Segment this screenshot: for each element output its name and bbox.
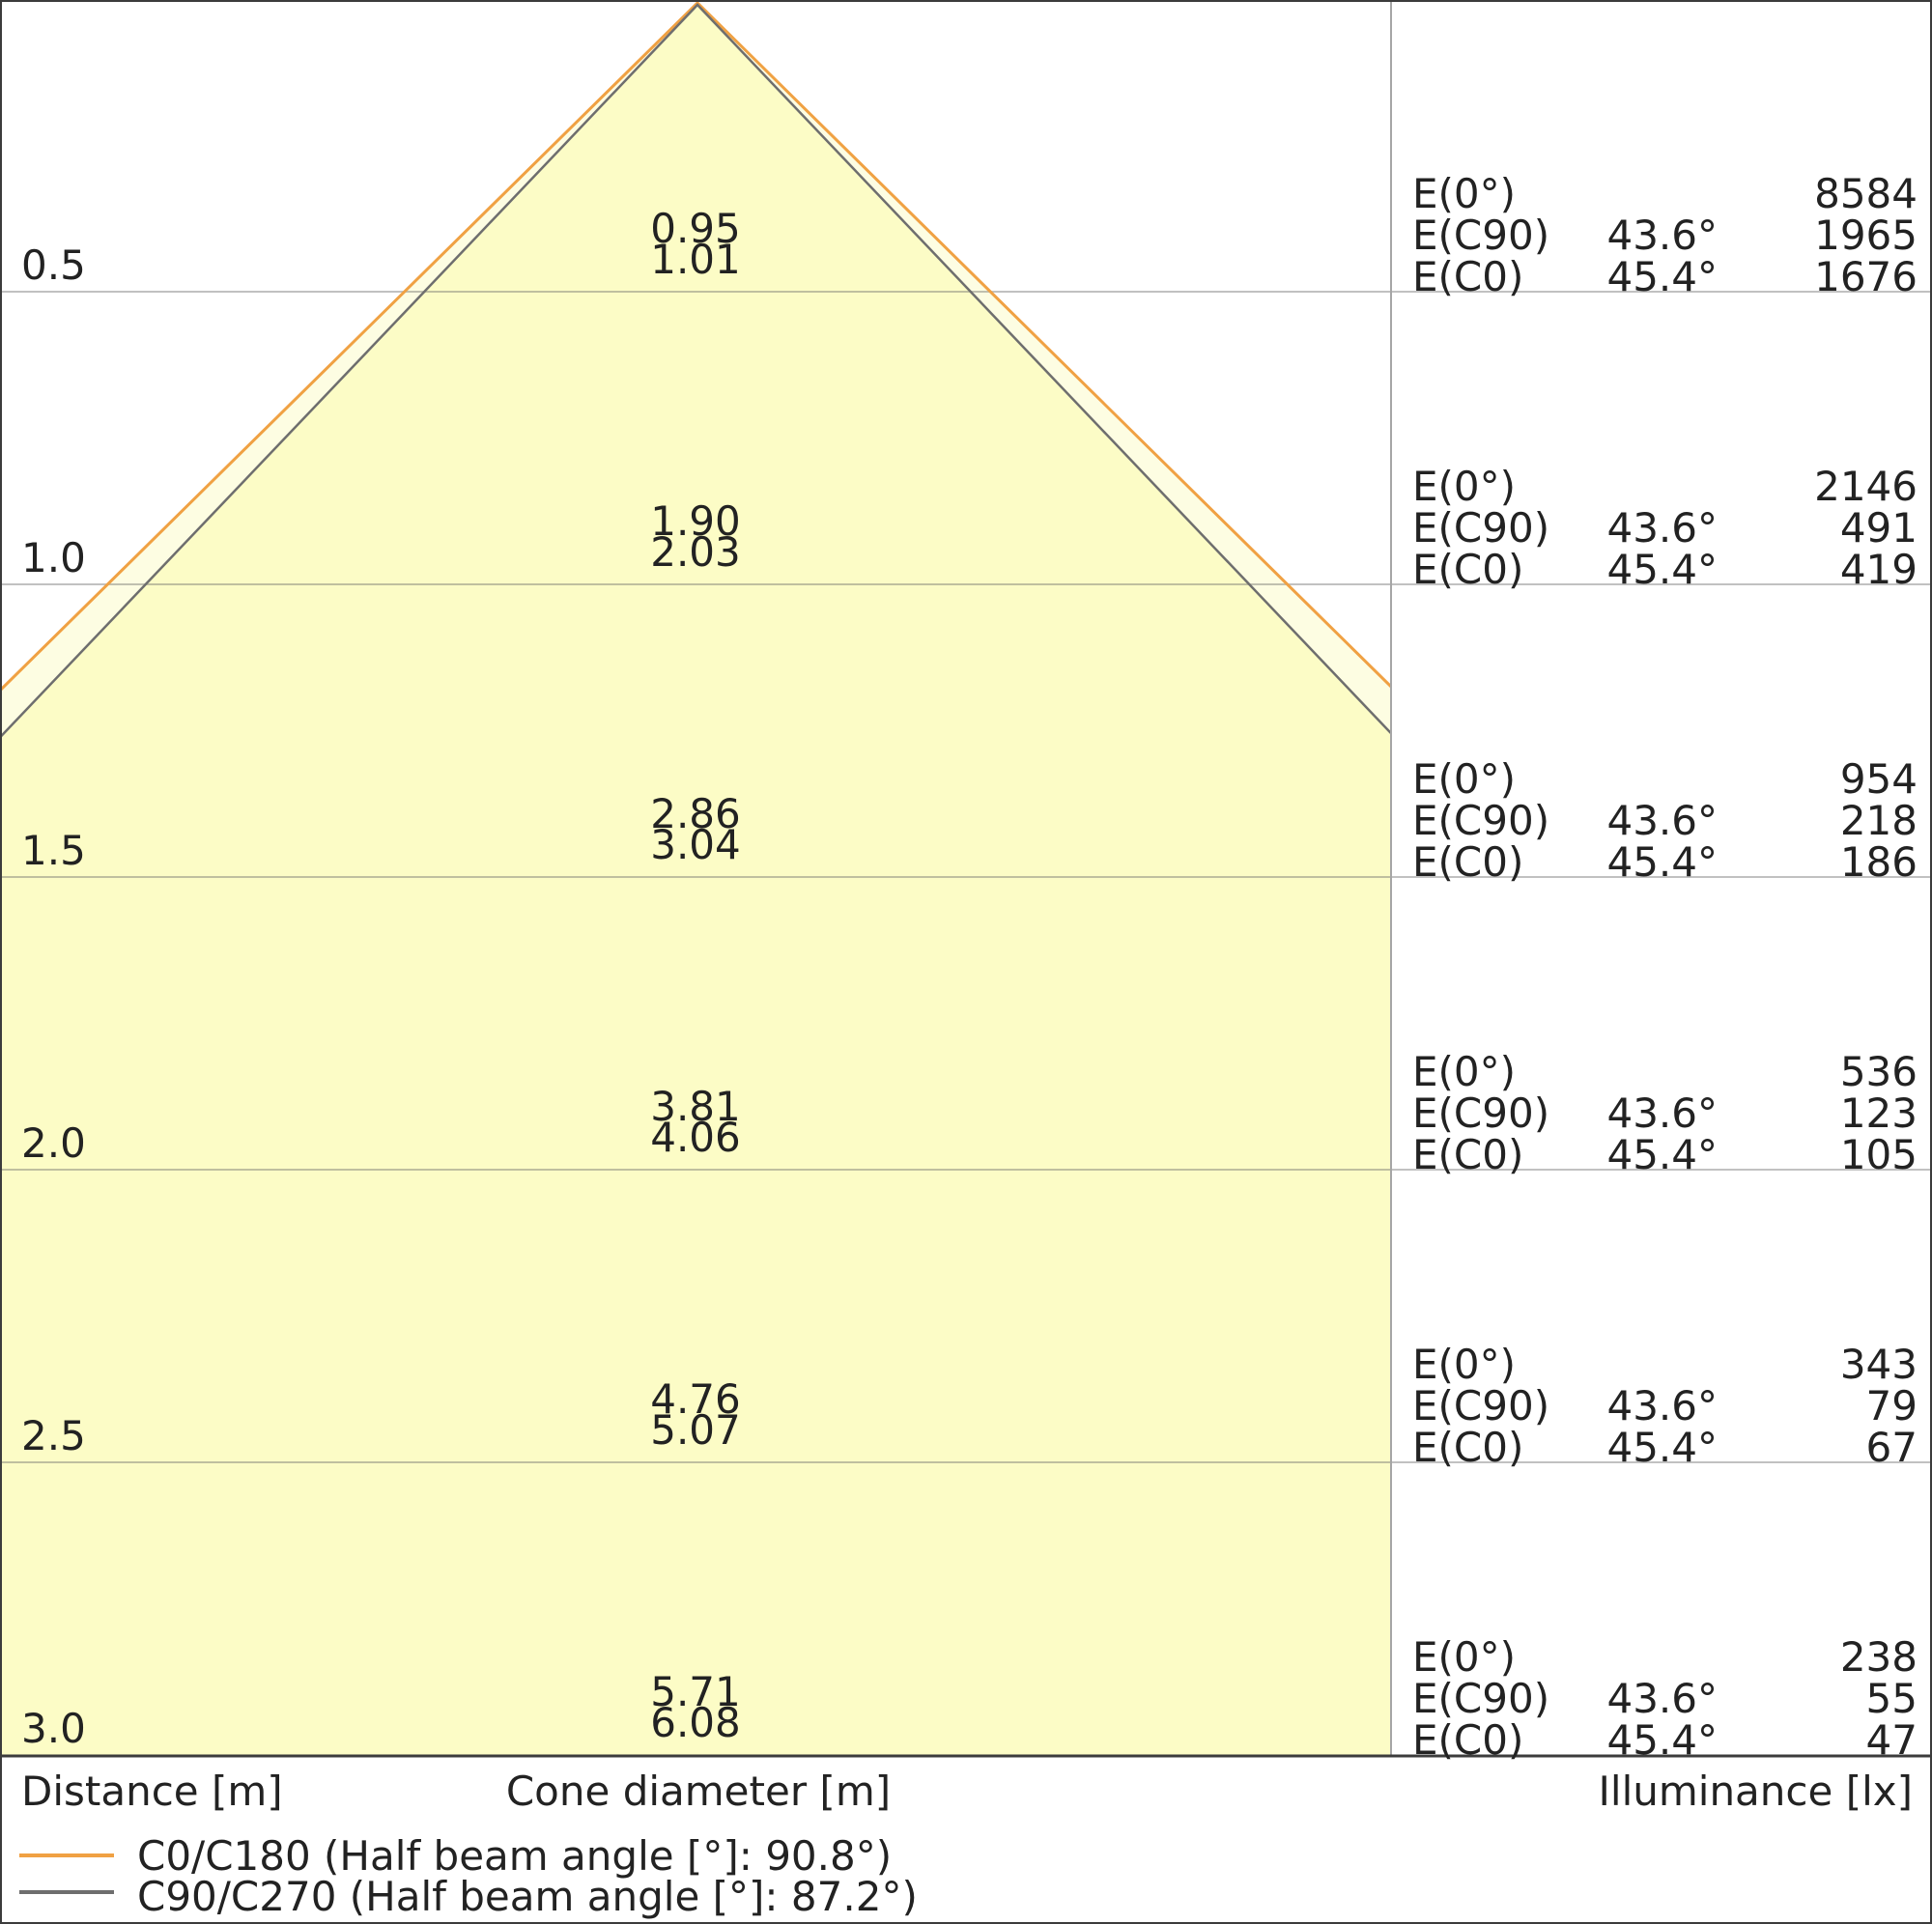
ec0-label: E(C0)	[1412, 1428, 1523, 1468]
e0-value: 238	[1840, 1637, 1918, 1678]
e0-value: 343	[1840, 1344, 1918, 1385]
cone-diameter-c0-1-5: 3.04	[0, 825, 1391, 865]
illuminance-row: E(C0) 45.4° 1676	[1391, 257, 1930, 301]
light-cone-diagram: 0.5 1.0 1.5 2.0 2.5 3.0 0.95 1.01 1.90 2…	[0, 0, 1932, 1924]
ec90-angle: 43.6°	[1606, 1093, 1718, 1134]
illuminance-row: E(C0) 45.4° 419	[1391, 550, 1930, 594]
ec0-value: 105	[1840, 1135, 1918, 1175]
ec90-value: 491	[1840, 508, 1918, 549]
illuminance-row: E(C0) 45.4° 186	[1391, 842, 1930, 887]
ec90-label: E(C90)	[1412, 508, 1549, 549]
legend-entry-c0-c180: C0/C180 (Half beam angle [°]: 90.8°)	[137, 1836, 892, 1877]
ec90-value: 218	[1840, 801, 1918, 841]
ec0-value: 1676	[1814, 257, 1918, 297]
ec0-value: 67	[1866, 1428, 1918, 1468]
ec0-label: E(C0)	[1412, 550, 1523, 590]
e0-label: E(0°)	[1412, 467, 1516, 507]
e0-label: E(0°)	[1412, 1637, 1516, 1678]
e0-value: 954	[1840, 759, 1918, 800]
legend-entry-c90-c270: C90/C270 (Half beam angle [°]: 87.2°)	[137, 1877, 918, 1917]
ec0-angle: 45.4°	[1606, 257, 1718, 297]
ec0-value: 419	[1840, 550, 1918, 590]
illuminance-row: E(C0) 45.4° 105	[1391, 1135, 1930, 1179]
ec0-label: E(C0)	[1412, 257, 1523, 297]
e0-value: 8584	[1814, 174, 1918, 214]
ec0-label: E(C0)	[1412, 1720, 1523, 1761]
illuminance-row: E(C0) 45.4° 47	[1391, 1720, 1930, 1765]
ec0-angle: 45.4°	[1606, 1135, 1718, 1175]
axis-label-illuminance: Illuminance [lx]	[0, 1771, 1913, 1812]
ec0-angle: 45.4°	[1606, 1720, 1718, 1761]
illuminance-row: E(C0) 45.4° 67	[1391, 1428, 1930, 1472]
ec90-value: 79	[1866, 1386, 1918, 1427]
ec90-angle: 43.6°	[1606, 801, 1718, 841]
ec90-angle: 43.6°	[1606, 215, 1718, 256]
e0-value: 2146	[1814, 467, 1918, 507]
e0-label: E(0°)	[1412, 174, 1516, 214]
ec90-value: 1965	[1814, 215, 1918, 256]
cone-diameter-c0-2-5: 5.07	[0, 1410, 1391, 1451]
ec0-label: E(C0)	[1412, 842, 1523, 883]
ec0-label: E(C0)	[1412, 1135, 1523, 1175]
ec90-label: E(C90)	[1412, 1679, 1549, 1719]
ec0-value: 47	[1866, 1720, 1918, 1761]
ec0-value: 186	[1840, 842, 1918, 883]
ec0-angle: 45.4°	[1606, 842, 1718, 883]
e0-label: E(0°)	[1412, 759, 1516, 800]
ec90-label: E(C90)	[1412, 801, 1549, 841]
ec90-value: 123	[1840, 1093, 1918, 1134]
ec90-angle: 43.6°	[1606, 508, 1718, 549]
ec90-value: 55	[1866, 1679, 1918, 1719]
ec90-angle: 43.6°	[1606, 1679, 1718, 1719]
e0-value: 536	[1840, 1052, 1918, 1092]
e0-label: E(0°)	[1412, 1052, 1516, 1092]
cone-diameter-c0-1-0: 2.03	[0, 532, 1391, 573]
cone-diameter-c0-2-0: 4.06	[0, 1118, 1391, 1158]
ec0-angle: 45.4°	[1606, 1428, 1718, 1468]
ec90-angle: 43.6°	[1606, 1386, 1718, 1427]
ec90-label: E(C90)	[1412, 215, 1549, 256]
ec90-label: E(C90)	[1412, 1386, 1549, 1427]
e0-label: E(0°)	[1412, 1344, 1516, 1385]
ec0-angle: 45.4°	[1606, 550, 1718, 590]
ec90-label: E(C90)	[1412, 1093, 1549, 1134]
cone-diameter-c0-3-0: 6.08	[0, 1703, 1391, 1743]
cone-diameter-c0-0-5: 1.01	[0, 240, 1391, 280]
